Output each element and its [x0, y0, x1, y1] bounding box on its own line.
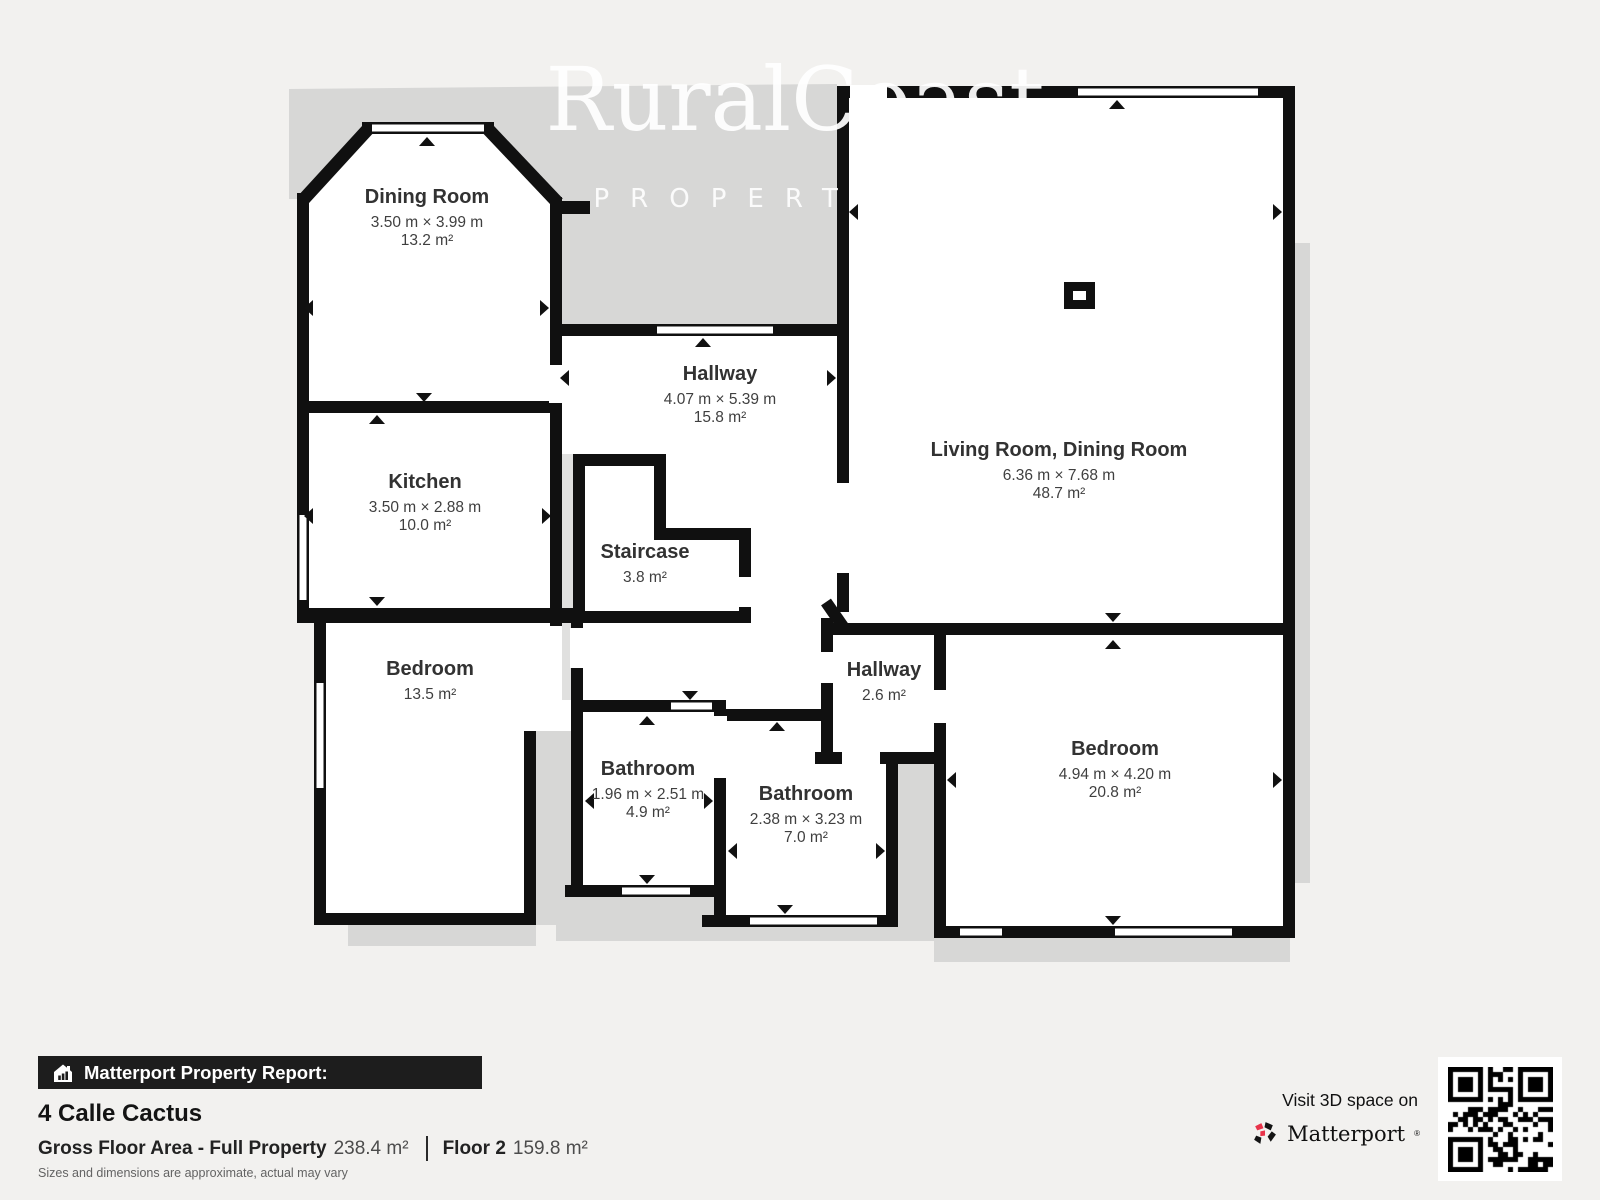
watermark-brand: RuralCoast — [546, 48, 1045, 151]
registered-mark: ® — [1414, 1129, 1420, 1138]
pillar — [1064, 282, 1095, 309]
room-dimensions: 6.36 m × 7.68 m — [1003, 467, 1115, 484]
room-dimensions: 1.96 m × 2.51 m — [592, 786, 704, 803]
report-title: Matterport Property Report: — [84, 1062, 328, 1084]
room-name: Bedroom — [386, 658, 474, 680]
divider — [426, 1136, 428, 1161]
qr-code — [1438, 1057, 1562, 1181]
room-area: 13.5 m² — [404, 686, 457, 703]
room-name: Hallway — [847, 659, 922, 681]
room-dimensions: 2.38 m × 3.23 m — [750, 811, 862, 828]
floor-value: 159.8 m² — [513, 1138, 588, 1160]
room-name: Dining Room — [365, 186, 489, 208]
floorplan-canvas: RuralCoast PROPERTIES Dining Room3.50 m … — [0, 0, 1600, 1200]
room-dimensions: 4.94 m × 4.20 m — [1059, 766, 1171, 783]
gfa-value: 238.4 m² — [334, 1138, 409, 1160]
room-dimensions: 3.50 m × 3.99 m — [371, 214, 483, 231]
room-area: 10.0 m² — [399, 517, 452, 534]
floor-label: Floor 2 — [443, 1138, 506, 1160]
qr-code-pattern — [1448, 1067, 1553, 1172]
matterport-pinwheel-icon — [1251, 1120, 1278, 1147]
room-name: Hallway — [683, 363, 758, 385]
room-area: 2.6 m² — [862, 687, 906, 704]
room-name: Bedroom — [1071, 738, 1159, 760]
matterport-floorplan-report: { "watermark": { "line1": "RuralCoast", … — [0, 0, 1600, 1200]
floor-area-metrics: Gross Floor Area - Full Property 238.4 m… — [38, 1136, 590, 1161]
room-area: 20.8 m² — [1089, 784, 1142, 801]
brand-wordmark: Matterport — [1287, 1122, 1405, 1146]
room-name: Bathroom — [759, 783, 853, 805]
room-name: Staircase — [601, 541, 690, 563]
room-area: 13.2 m² — [401, 232, 454, 249]
room-hallway-floor — [556, 330, 843, 712]
property-address: 4 Calle Cactus — [38, 1100, 202, 1128]
room-area: 48.7 m² — [1033, 485, 1086, 502]
watermark-sub: PROPERTIES — [594, 184, 963, 214]
room-name: Kitchen — [388, 471, 461, 493]
room-living-floor — [843, 92, 1289, 631]
room-area: 15.8 m² — [694, 409, 747, 426]
room-name: Bathroom — [601, 758, 695, 780]
room-name: Living Room, Dining Room — [931, 439, 1188, 461]
visit-cta: Visit 3D space on — [1200, 1090, 1418, 1111]
house-chart-icon — [52, 1062, 74, 1084]
brand-row: Matterport® — [1200, 1120, 1420, 1147]
gfa-label: Gross Floor Area - Full Property — [38, 1138, 327, 1160]
room-area: 3.8 m² — [623, 569, 667, 586]
report-header-bar: Matterport Property Report: — [38, 1056, 482, 1089]
visit-3d-block: Visit 3D space on Matterport® — [1200, 1090, 1420, 1147]
room-dimensions: 4.07 m × 5.39 m — [664, 391, 776, 408]
room-area: 4.9 m² — [626, 804, 670, 821]
disclaimer-note: Sizes and dimensions are approximate, ac… — [38, 1166, 348, 1180]
room-area: 7.0 m² — [784, 829, 828, 846]
room-dimensions: 3.50 m × 2.88 m — [369, 499, 481, 516]
